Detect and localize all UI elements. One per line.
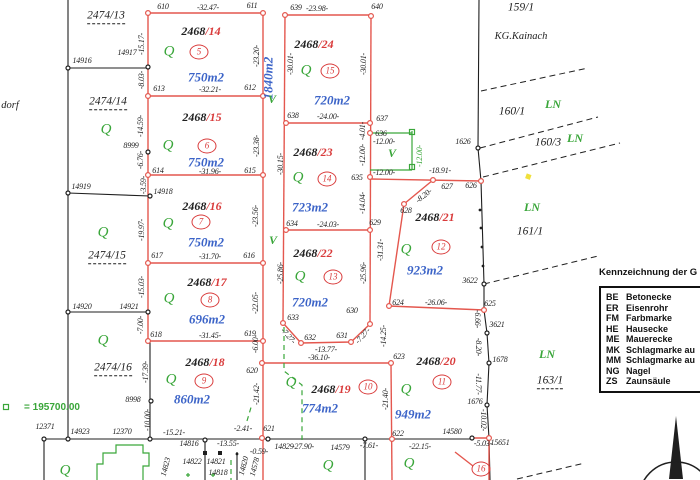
legend-items: BEBetoneckeEREisenrohrFMFarbmarkeHEHause… (606, 292, 700, 387)
map-label-pt: 622 (392, 430, 403, 438)
map-label-pt: 14818 (208, 469, 227, 477)
map-label-m: -13.55- (217, 440, 239, 448)
parcel-number: 2468/16 (182, 200, 221, 212)
lot-circle-5: 5 (190, 45, 209, 60)
map-label-m: -7.27- (279, 327, 297, 346)
map-label-q: Q (293, 171, 304, 186)
parcel-sub: /19 (335, 382, 350, 396)
map-label-pt: 14580 (442, 428, 461, 436)
map-label-kg: dorf (1, 101, 19, 112)
map-label-m: -12.00- (359, 144, 367, 166)
map-label-pt: 638 (287, 112, 298, 120)
map-label-m: -31.45- (199, 332, 221, 340)
map-label-area: 774m2 (302, 402, 338, 415)
legend-title: Kennzeichnung der G (599, 267, 700, 278)
map-label-area: 949m2 (395, 408, 431, 421)
lot-circle-10: 10 (359, 380, 378, 395)
legend-code: ER (606, 303, 626, 314)
map-label-pt: 632 (304, 334, 315, 342)
parcel-number: 2468/24 (294, 38, 333, 50)
map-label-pt: 12370 (112, 428, 131, 436)
legend-label: Mauerecke (626, 334, 673, 345)
parcel-stem: 2468 (293, 246, 317, 260)
map-label-m: -36.10- (308, 354, 330, 362)
map-label-m: -19.97- (138, 219, 146, 241)
legend-label: Schlagmarke au (626, 345, 695, 356)
parcel-stem: 2468 (182, 199, 206, 213)
parcel-stem: 2468 (185, 355, 209, 369)
legend-row: HEHausecke (606, 324, 700, 335)
map-label-q: Q (401, 383, 412, 398)
map-label-q: Q (286, 376, 297, 391)
map-label-m: -24.00- (317, 113, 339, 121)
map-label-m: -7.00- (137, 316, 145, 334)
legend-row: MMSchlagmarke au (606, 355, 700, 366)
legend-label: Schlagmarke au (626, 355, 695, 366)
parcel-stem: 2468 (416, 354, 440, 368)
legend-row: EREisenrohr (606, 303, 700, 314)
lot-circle-16: 16 (472, 462, 491, 477)
map-label-m: -6.66- (473, 310, 481, 328)
map-label-m: -3.59- (140, 176, 148, 194)
map-label-area: 720m2 (314, 94, 350, 107)
legend-row: MKSchlagmarke au (606, 345, 700, 356)
map-label-pt: 15651 (490, 439, 509, 447)
map-label-pt: 1676 (467, 398, 482, 406)
legend-label: Zaunsäule (626, 376, 671, 387)
map-label-coord: = 195700.00 (24, 403, 80, 413)
map-label-v: V (269, 234, 277, 246)
map-label-kg: KG.Kainach (495, 32, 548, 43)
parcel-stem: 2468 (294, 37, 318, 51)
map-label-old: 2474/13 (87, 10, 125, 24)
map-label-q: Q (163, 217, 174, 232)
map-label-pt: 14821 (206, 458, 225, 466)
map-label-q: Q (323, 459, 334, 474)
map-label-m: -7.61- (360, 442, 378, 450)
map-label-pt: 8998 (125, 396, 140, 404)
map-label-pt: 624 (392, 299, 403, 307)
legend-label: Eisenrohr (626, 303, 668, 314)
legend: Kennzeichnung der G BEBetoneckeEREisenro… (599, 267, 700, 393)
legend-row: MEMauerecke (606, 334, 700, 345)
map-label-pt: 628 (400, 207, 411, 215)
map-label-pt: 635 (351, 174, 362, 182)
map-label-old: 2474/14 (89, 96, 127, 110)
legend-row: NGNagel (606, 366, 700, 377)
map-label-plain: 160/3 (535, 137, 561, 149)
map-label-q: Q (295, 270, 306, 285)
map-label-m: -30.01- (287, 53, 295, 75)
map-label-m: -25.96- (360, 262, 368, 284)
map-label-m: -18.91- (429, 167, 451, 175)
map-label-m: -21.42- (253, 383, 261, 405)
map-label-m: -31.31- (377, 239, 385, 261)
parcel-number: 2468/22 (293, 247, 332, 259)
lot-circle-7: 7 (192, 215, 211, 230)
map-label-pt: 14829 (274, 443, 293, 451)
map-label-pt: 14921 (119, 303, 138, 311)
map-label-area: 750m2 (188, 156, 224, 169)
map-label-pt: 637 (376, 115, 387, 123)
legend-code: ZS (606, 376, 626, 387)
parcel-number: 2468/15 (182, 111, 221, 123)
legend-code: NG (606, 366, 626, 377)
map-label-pt: 14579 (330, 444, 349, 452)
cadastral-plan: -32.47--32.21--31.96--31.70--31.45--23.9… (0, 0, 700, 480)
map-label-pt: 1626 (455, 138, 470, 146)
legend-label: Farbmarke (626, 313, 672, 324)
parcel-stem: 2468 (181, 24, 205, 38)
parcel-sub: /18 (209, 355, 224, 369)
map-label-area: 750m2 (188, 71, 224, 84)
lot-circle-8: 8 (201, 293, 220, 308)
map-label-q: Q (164, 292, 175, 307)
map-label-area: 750m2 (188, 236, 224, 249)
label-layer: -32.47--32.21--31.96--31.70--31.45--23.9… (0, 0, 700, 480)
map-label-q: Q (60, 464, 71, 479)
map-label-m: -26.06- (425, 299, 447, 307)
map-label-q: Q (163, 139, 174, 154)
map-label-m: -6.76- (137, 151, 145, 169)
map-label-m: -15.03- (138, 276, 146, 298)
parcel-stem: 2468 (187, 275, 211, 289)
map-label-q: Q (164, 45, 175, 60)
map-label-m: -25.86- (277, 262, 285, 284)
map-label-m: -17.39- (142, 361, 150, 383)
map-label-pt: 625 (484, 300, 495, 308)
map-label-pt: 8999 (123, 142, 138, 150)
map-label-pt: 12371 (35, 423, 54, 431)
parcel-stem: 2468 (311, 382, 335, 396)
legend-box: BEBetoneckeEREisenrohrFMFarbmarkeHEHause… (599, 286, 700, 393)
map-label-m: -14.25- (380, 325, 388, 347)
map-label-pt: 615 (244, 167, 255, 175)
parcel-sub: /23 (317, 145, 332, 159)
parcel-number: 2468/21 (415, 211, 454, 223)
map-label-pt: 616 (243, 252, 254, 260)
map-label-m: -22.15- (409, 443, 431, 451)
map-label-pt: 630 (346, 307, 357, 315)
legend-row: FMFarbmarke (606, 313, 700, 324)
lot-circle-11: 11 (433, 375, 452, 390)
map-label-pt: 14923 (70, 428, 89, 436)
parcel-number: 2468/20 (416, 355, 455, 367)
legend-label: Hausecke (626, 324, 668, 335)
map-label-m: -12.00- (416, 145, 424, 167)
map-label-pt: 610 (157, 3, 168, 11)
legend-code: MK (606, 345, 626, 356)
map-label-pt: 1678 (492, 356, 507, 364)
map-label-pt: 611 (247, 2, 258, 10)
map-label-m: -12.00- (373, 169, 395, 177)
map-label-m: -10.02- (479, 409, 487, 431)
parcel-sub: /24 (318, 37, 333, 51)
legend-row: ZSZaunsäule (606, 376, 700, 387)
map-label-m: -15.17- (138, 33, 146, 55)
map-label-m: -2.41- (234, 425, 252, 433)
legend-label: Betonecke (626, 292, 672, 303)
map-label-m: -32.21- (199, 86, 221, 94)
map-label-pt: 626 (465, 182, 476, 190)
map-label-ln: LN (539, 348, 555, 360)
map-label-pt: 627 (441, 183, 452, 191)
map-label-q: Q (98, 334, 109, 349)
map-label-pt: 14917 (117, 49, 136, 57)
lot-circle-14: 14 (318, 172, 337, 187)
map-label-q: Q (401, 243, 412, 258)
map-label-q: Q (101, 123, 112, 138)
map-label-plain: 160/1 (499, 106, 525, 118)
legend-label: Nagel (626, 366, 651, 377)
lot-circle-15: 15 (321, 64, 340, 79)
map-label-m: -23.56- (252, 205, 260, 227)
map-label-ln: LN (545, 98, 561, 110)
map-label-m: -14.04- (359, 192, 367, 214)
map-label-m: -12.00- (373, 138, 395, 146)
map-label-pt: 639 (290, 4, 301, 12)
map-label-area: 860m2 (174, 393, 210, 406)
parcel-number: 2468/19 (311, 383, 350, 395)
parcel-number: 2468/23 (293, 146, 332, 158)
map-label-m: -23.98- (306, 5, 328, 13)
parcel-sub: /22 (317, 246, 332, 260)
parcel-stem: 2468 (415, 210, 439, 224)
map-label-m: -10.00- (144, 409, 152, 431)
map-label-pt: 636 (375, 130, 386, 138)
map-label-m: -23.38- (253, 135, 261, 157)
legend-code: MM (606, 355, 626, 366)
map-label-pt: 14918 (153, 188, 172, 196)
parcel-sub: /16 (206, 199, 221, 213)
map-label-ln: LN (567, 132, 583, 144)
map-label-old: 2474/16 (94, 362, 132, 376)
map-label-pt: 618 (150, 331, 161, 339)
map-label-pt: 629 (369, 219, 380, 227)
map-label-pt: 623 (393, 353, 404, 361)
map-label-pt: 14823 (160, 457, 173, 477)
map-label-pt: 621 (263, 425, 274, 433)
map-label-m: -21.40- (382, 388, 390, 410)
map-label-area: 723m2 (292, 201, 328, 214)
map-label-area: 696m2 (189, 313, 225, 326)
map-label-pt: 620 (246, 367, 257, 375)
map-label-m: -8.20- (414, 187, 433, 204)
parcel-sub: /14 (205, 24, 220, 38)
map-label-m: -11.77- (474, 373, 482, 394)
map-label-q: Q (301, 64, 312, 79)
parcel-number: 2468/17 (187, 276, 226, 288)
legend-code: ME (606, 334, 626, 345)
map-label-pt: 14919 (71, 183, 90, 191)
map-label-m: -0.59- (250, 448, 268, 456)
map-label-q: Q (404, 457, 415, 472)
lot-circle-9: 9 (195, 374, 214, 389)
map-label-m: -7.27- (354, 327, 372, 346)
map-label-pt: 619 (244, 330, 255, 338)
parcel-number: 2468/14 (181, 25, 220, 37)
map-label-ln: LN (524, 201, 540, 213)
lot-circle-13: 13 (324, 270, 343, 285)
map-label-m: -14.59- (137, 115, 145, 137)
map-label-plain: 161/1 (517, 226, 543, 238)
map-label-m: -8.20- (474, 338, 482, 356)
map-label-q: Q (98, 226, 109, 241)
map-label-m: -22.05- (252, 292, 260, 314)
map-label-m: -30.01- (360, 53, 368, 75)
map-label-pt: 14822 (182, 458, 201, 466)
legend-code: HE (606, 324, 626, 335)
lot-circle-12: 12 (432, 240, 451, 255)
map-label-m: -15.21- (163, 429, 185, 437)
legend-code: FM (606, 313, 626, 324)
map-label-area: 923m2 (407, 264, 443, 277)
map-label-pt: 614 (152, 167, 163, 175)
map-label-pt: 634 (286, 220, 297, 228)
map-label-m: -24.03- (317, 221, 339, 229)
parcel-number: 2468/18 (185, 356, 224, 368)
lot-circle-6: 6 (198, 139, 217, 154)
map-label-m: -8.03- (138, 71, 146, 89)
map-label-m: -5.03- (474, 440, 492, 448)
parcel-sub: /15 (206, 110, 221, 124)
map-label-old: 163/1 (537, 375, 563, 389)
map-label-pt: 14578 (249, 457, 262, 477)
map-label-v: V (388, 147, 396, 159)
map-label-pt: 14916 (72, 57, 91, 65)
map-label-m: -32.47- (197, 4, 219, 12)
legend-code: BE (606, 292, 626, 303)
map-label-m: -4.01- (359, 122, 367, 140)
map-label-m: -27.90- (292, 443, 314, 451)
parcel-stem: 2468 (293, 145, 317, 159)
map-label-pt: 3622 (462, 277, 477, 285)
map-label-pt: 612 (244, 84, 255, 92)
parcel-sub: /17 (211, 275, 226, 289)
map-label-v: V (268, 93, 276, 105)
map-label-pt: 613 (153, 85, 164, 93)
map-label-pt: 640 (371, 3, 382, 11)
map-label-old: 2474/15 (88, 250, 126, 264)
map-label-pt: 3621 (489, 321, 504, 329)
map-label-q: Q (166, 373, 177, 388)
map-label-area: 720m2 (292, 296, 328, 309)
map-label-plain: 159/1 (508, 2, 534, 14)
map-label-pt: 631 (336, 332, 347, 340)
parcel-sub: /20 (440, 354, 455, 368)
map-label-m: -30.15- (277, 153, 285, 175)
legend-row: BEBetonecke (606, 292, 700, 303)
parcel-stem: 2468 (182, 110, 206, 124)
map-label-pt: 633 (287, 314, 298, 322)
map-label-m: -31.70- (199, 253, 221, 261)
map-label-pt: 617 (151, 252, 162, 260)
map-label-pt: 14920 (72, 303, 91, 311)
parcel-sub: /21 (439, 210, 454, 224)
map-label-pt: 14816 (179, 440, 198, 448)
